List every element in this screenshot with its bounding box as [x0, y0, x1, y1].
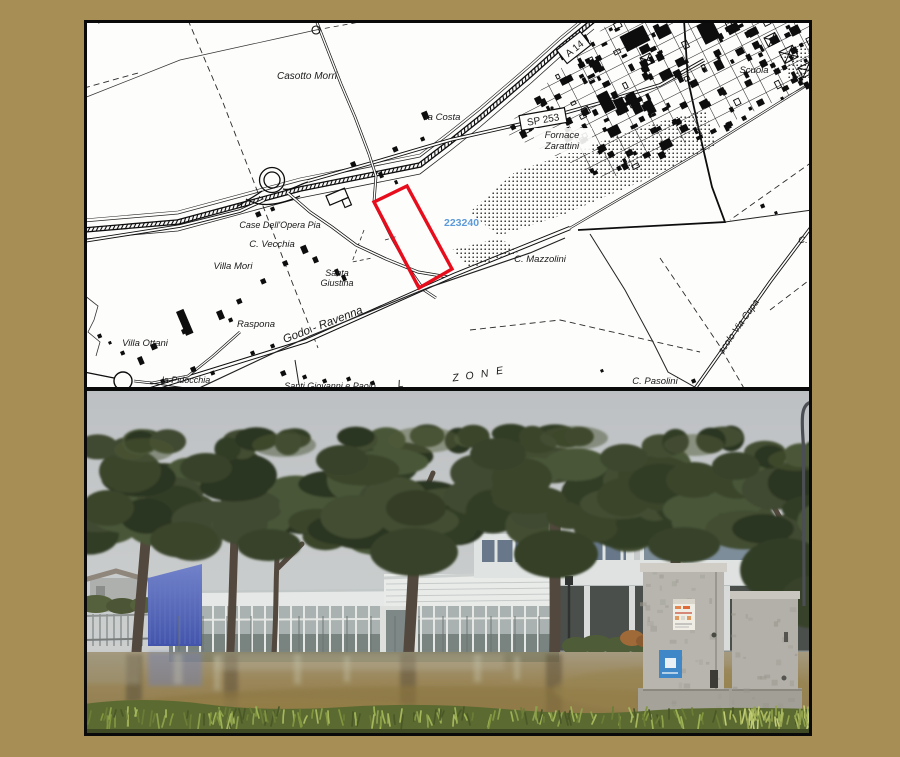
svg-text:C. Mazzolini: C. Mazzolini	[514, 254, 567, 265]
svg-text:Raspona: Raspona	[237, 319, 275, 330]
svg-text:Giustina: Giustina	[320, 278, 353, 288]
svg-text:C. Vecchia: C. Vecchia	[249, 239, 295, 250]
svg-text:C.: C.	[798, 235, 808, 246]
svg-text:Villa Mori: Villa Mori	[214, 261, 254, 272]
svg-text:Villa Ottani: Villa Ottani	[122, 338, 169, 349]
svg-text:C. Pasolini: C. Pasolini	[632, 376, 678, 387]
svg-text:Zarattini: Zarattini	[544, 141, 580, 152]
svg-text:Fornace: Fornace	[545, 130, 580, 141]
svg-text:223240: 223240	[444, 217, 479, 229]
svg-text:la Costa: la Costa	[426, 112, 461, 123]
svg-text:Case Dell'Opera Pia: Case Dell'Opera Pia	[239, 220, 320, 230]
svg-text:Scuola: Scuola	[739, 65, 768, 76]
svg-text:Casotto Morri: Casotto Morri	[277, 71, 338, 82]
svg-text:la Pidocchia: la Pidocchia	[162, 375, 211, 385]
svg-text:O: O	[465, 370, 475, 383]
svg-text:Santa: Santa	[325, 268, 349, 278]
